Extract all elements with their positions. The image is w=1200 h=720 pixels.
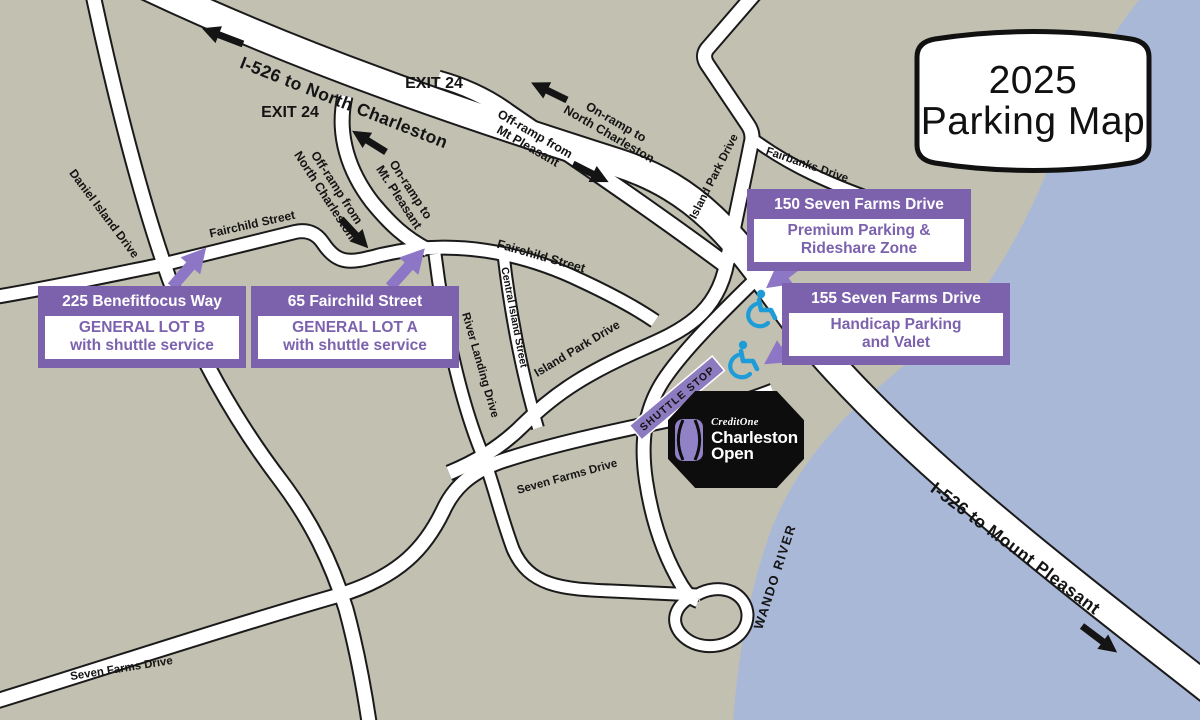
tennis-shield-icon <box>674 418 704 462</box>
exit-24-left-label: EXIT 24 <box>261 104 319 121</box>
callout-line2: Rideshare Zone <box>758 240 960 258</box>
venue-name-line2: Open <box>711 446 798 462</box>
callout-line2: and Valet <box>793 334 999 352</box>
callout-general-lot-a: 65 Fairchild Street GENERAL LOT A with s… <box>251 286 459 368</box>
callout-address: 65 Fairchild Street <box>258 293 452 311</box>
exit-24-right-label: EXIT 24 <box>405 75 463 92</box>
callout-line2: with shuttle service <box>262 337 448 355</box>
title-label: Parking Map <box>921 102 1145 141</box>
callout-general-lot-b: 225 Benefitfocus Way GENERAL LOT B with … <box>38 286 246 368</box>
callout-address: 150 Seven Farms Drive <box>754 196 964 214</box>
venue-logo: CreditOne Charleston Open <box>668 391 804 488</box>
callout-line1: Premium Parking & <box>758 222 960 240</box>
callout-handicap-valet: 155 Seven Farms Drive Handicap Parking a… <box>782 283 1010 365</box>
credit-one-brand: CreditOne <box>711 417 798 428</box>
callout-line1: Handicap Parking <box>793 316 999 334</box>
callout-line1: GENERAL LOT B <box>49 319 235 337</box>
callout-address: 155 Seven Farms Drive <box>789 290 1003 308</box>
callout-line1: GENERAL LOT A <box>262 319 448 337</box>
parking-map: I-526 to North Charleston I-526 to Mount… <box>0 0 1200 720</box>
title-year: 2025 <box>989 61 1078 100</box>
callout-address: 225 Benefitfocus Way <box>45 293 239 311</box>
map-title-box: 2025 Parking Map <box>903 25 1163 177</box>
callout-line2: with shuttle service <box>49 337 235 355</box>
callout-premium-parking: 150 Seven Farms Drive Premium Parking & … <box>747 189 971 271</box>
